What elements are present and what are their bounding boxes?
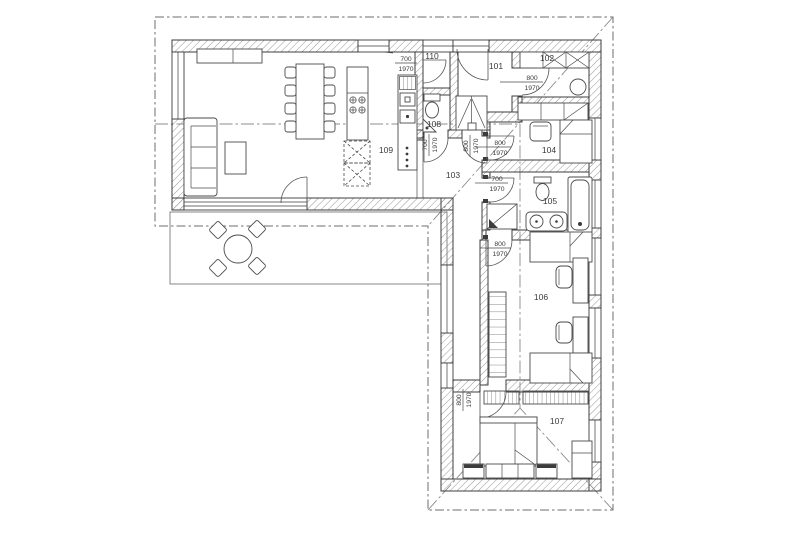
- terrace-table-icon: [224, 235, 252, 263]
- dining-table-icon: [296, 64, 324, 139]
- wardrobe-107-right-icon: [572, 441, 592, 478]
- svg-text:700: 700: [422, 139, 429, 151]
- svg-text:800: 800: [494, 241, 506, 248]
- wardrobe-107-top-a-icon: [484, 391, 519, 404]
- dining-chair-icon: [285, 85, 296, 96]
- svg-text:700: 700: [400, 56, 412, 63]
- svg-text:1970: 1970: [473, 138, 480, 153]
- terrace: [170, 212, 447, 284]
- svg-text:800: 800: [494, 140, 506, 147]
- svg-text:1970: 1970: [432, 137, 439, 152]
- bed-106b-icon: [530, 353, 592, 383]
- bathtub-icon: [568, 177, 592, 233]
- dining-chair-icon: [324, 85, 335, 96]
- wall-left-lower: [172, 119, 184, 210]
- kitchen-counter-icon: [398, 75, 417, 170]
- room-label-107: 107: [550, 416, 564, 426]
- wall-wing-left-3: [441, 388, 453, 479]
- kitchen-island-icon: [347, 67, 368, 140]
- room-label-108: 108: [427, 119, 441, 129]
- door-tag-hall: 800 1970: [463, 135, 480, 157]
- door-tag-pantry: 700 1970: [384, 52, 417, 73]
- room-label-109: 109: [379, 145, 393, 155]
- room-label-101: 101: [489, 61, 503, 71]
- nightstand-icon: [463, 464, 484, 478]
- shower-icon: [487, 204, 517, 229]
- svg-text:700: 700: [491, 176, 503, 183]
- terrace-chair-icon: [248, 257, 266, 275]
- bed-bench-icon: [486, 464, 534, 478]
- roof-outline: [155, 17, 613, 510]
- wall-wing-left-2: [441, 333, 453, 363]
- terrace-chair-icon: [209, 259, 227, 277]
- room-label-104: 104: [542, 145, 556, 155]
- wc-toilet-icon: [424, 94, 440, 118]
- dining-chair-icon: [285, 67, 296, 78]
- dining-chair-icon: [324, 121, 335, 132]
- room-label-105: 105: [543, 196, 557, 206]
- wall-bottom: [441, 479, 601, 491]
- desk-106b-icon: [573, 317, 588, 353]
- wall-wing-left-1: [441, 198, 453, 265]
- wall-101-104: [482, 112, 522, 122]
- wall-106-left: [480, 240, 488, 385]
- wall-corner-sw: [172, 198, 184, 210]
- floor-plan-drawing: 101 102 103 104 105 106 107 108 109 110 …: [0, 0, 800, 535]
- room-label-106: 106: [534, 292, 548, 302]
- sink-drainer-icon: [400, 77, 416, 90]
- wardrobe-107-top-b-icon: [523, 391, 588, 404]
- living-kitchen-furniture: [184, 49, 417, 196]
- dining-chair-icon: [324, 103, 335, 114]
- boiler-icon: [570, 79, 586, 95]
- wardrobe-104-icon: [518, 103, 588, 120]
- double-bed-107-icon: [480, 417, 537, 466]
- glass-wall-terrace: [184, 198, 307, 210]
- svg-text:800: 800: [526, 75, 538, 82]
- svg-text:800: 800: [456, 394, 463, 406]
- desk-106a-icon: [573, 258, 588, 303]
- room-label-102: 102: [540, 53, 554, 63]
- svg-text:1970: 1970: [398, 66, 413, 73]
- door-tag-102: 800 1970: [500, 75, 543, 92]
- chair-104-icon: [530, 122, 551, 141]
- svg-text:1970: 1970: [489, 186, 504, 193]
- sofa-icon: [184, 118, 217, 196]
- coffee-table-icon: [225, 142, 246, 174]
- dining-chair-icon: [285, 103, 296, 114]
- window-wing-left-b: [441, 363, 453, 388]
- wall-right-4: [589, 295, 601, 308]
- window-right-106b: [589, 308, 601, 358]
- dining-chair-icon: [285, 121, 296, 132]
- wall-top-3: [489, 40, 601, 52]
- svg-text:1970: 1970: [492, 251, 507, 258]
- door-tag-wc-108: 700 1970: [422, 134, 439, 156]
- terrace-chair-icon: [209, 221, 227, 239]
- pantry-door-icon: [423, 60, 446, 83]
- wall-right-1: [589, 52, 601, 118]
- nightstand-icon: [536, 464, 557, 478]
- bedroom-107-furniture: [463, 391, 592, 478]
- chair-106a-icon: [556, 266, 572, 288]
- entry-wardrobe-icon: [456, 96, 487, 130]
- wall-top-2: [389, 40, 423, 52]
- sideboard-icon: [197, 49, 262, 63]
- floor-plan-canvas: 101 102 103 104 105 106 107 108 109 110 …: [0, 0, 800, 535]
- wall-106-107-a: [453, 380, 480, 392]
- wall-living-south: [307, 198, 453, 210]
- dining-chair-icon: [324, 67, 335, 78]
- sink-icon: [400, 110, 415, 123]
- oven-icon: [400, 93, 415, 106]
- terrace-chair-icon: [248, 220, 266, 238]
- svg-text:1970: 1970: [524, 85, 539, 92]
- closet-row-102-icon: [520, 52, 589, 68]
- window-top-kitchen: [358, 40, 389, 52]
- entrance-threshold: [453, 40, 489, 52]
- double-sink-vanity-icon: [526, 212, 567, 231]
- door-tag-104: 800 1970: [476, 140, 511, 157]
- door-tag-105: 700 1970: [475, 176, 508, 193]
- svg-text:800: 800: [463, 140, 470, 152]
- room-label-110: 110: [425, 51, 439, 61]
- shelf-106-icon: [489, 292, 506, 377]
- wall-hall-top-2: [448, 130, 462, 138]
- hood-icon: [344, 141, 370, 186]
- window-left-living: [172, 52, 184, 119]
- svg-text:1970: 1970: [466, 392, 473, 407]
- chair-106b-icon: [556, 322, 572, 343]
- svg-text:1970: 1970: [492, 150, 507, 157]
- bed-106a-icon: [530, 232, 592, 262]
- entrance-door-icon: [457, 49, 488, 80]
- bed-104-icon: [560, 120, 592, 163]
- room-label-103: 103: [446, 170, 460, 180]
- window-wing-left-a: [441, 265, 453, 333]
